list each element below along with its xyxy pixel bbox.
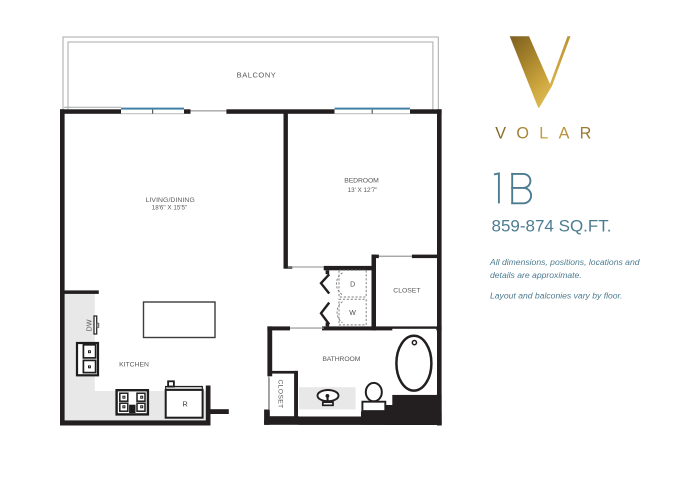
svg-text:Layout and balconies vary by f: Layout and balconies vary by floor. <box>490 291 623 301</box>
svg-text:LIVING/DINING: LIVING/DINING <box>146 197 195 204</box>
svg-text:VOLAR: VOLAR <box>495 124 601 142</box>
svg-text:BEDROOM: BEDROOM <box>344 178 379 185</box>
svg-text:W: W <box>349 310 356 317</box>
svg-text:details are approximate.: details are approximate. <box>490 270 582 280</box>
svg-text:KITCHEN: KITCHEN <box>119 362 149 369</box>
svg-text:DW: DW <box>86 319 93 331</box>
svg-text:BALCONY: BALCONY <box>237 71 277 80</box>
svg-text:18'6" X 15'5": 18'6" X 15'5" <box>152 204 188 211</box>
svg-text:13' X 12'7": 13' X 12'7" <box>348 187 378 194</box>
svg-text:CLOSET: CLOSET <box>393 288 420 295</box>
svg-text:R: R <box>182 399 187 408</box>
svg-text:859-874 SQ.FT.: 859-874 SQ.FT. <box>492 216 612 235</box>
svg-text:CLOSET: CLOSET <box>276 380 283 409</box>
svg-text:BATHROOM: BATHROOM <box>322 356 360 363</box>
svg-text:D: D <box>350 281 355 288</box>
svg-text:All dimensions, positions, loc: All dimensions, positions, locations and <box>489 257 640 267</box>
